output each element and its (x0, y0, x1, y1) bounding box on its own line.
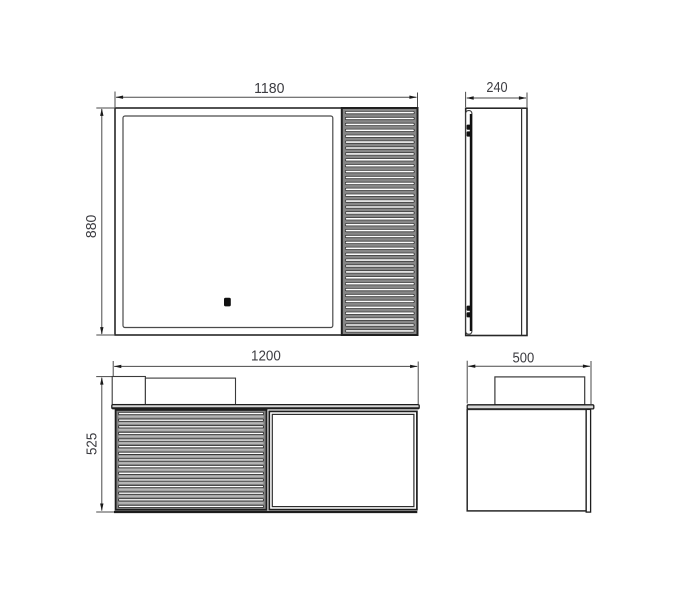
svg-text:525: 525 (83, 433, 100, 455)
svg-text:880: 880 (83, 215, 100, 238)
svg-text:500: 500 (513, 349, 535, 366)
svg-text:240: 240 (486, 79, 507, 96)
svg-text:1180: 1180 (254, 80, 284, 97)
svg-text:1200: 1200 (251, 348, 281, 365)
